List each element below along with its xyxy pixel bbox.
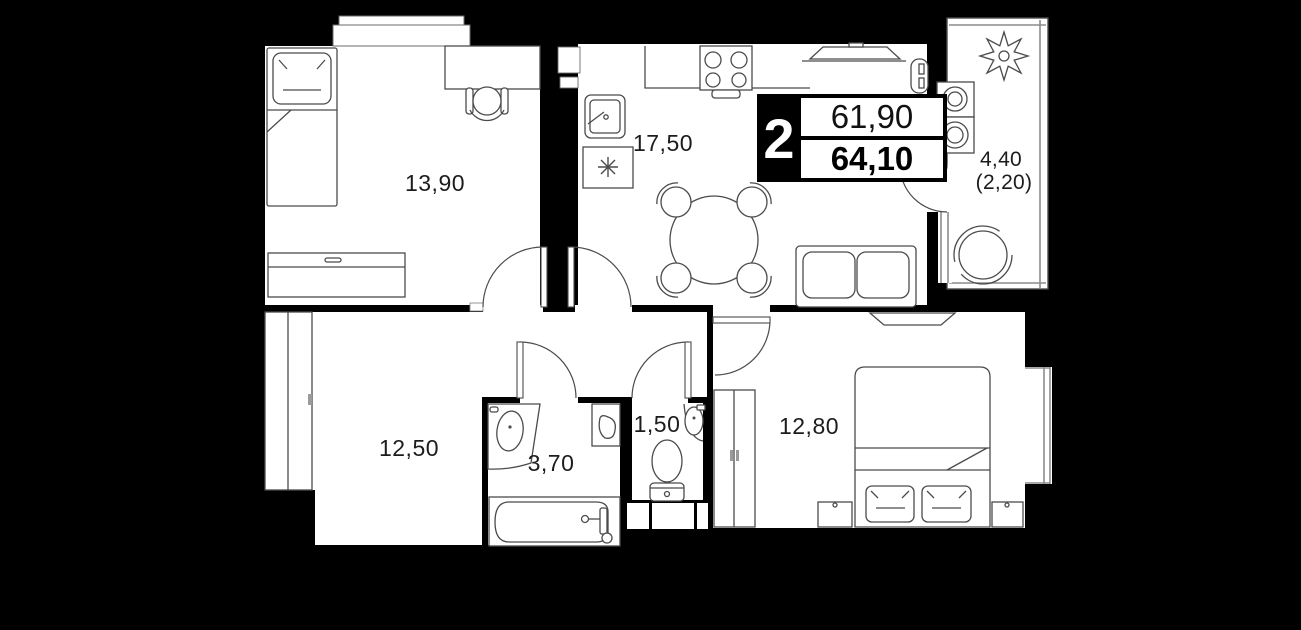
kitchen-living-area-label: 17,50 <box>633 130 693 156</box>
badge-total-area: 64,10 <box>831 140 914 177</box>
hall-area-label: 12,50 <box>379 435 439 461</box>
single-bed <box>267 48 337 206</box>
wall-endcap <box>470 303 483 311</box>
corridor-floor <box>460 312 707 397</box>
stove <box>700 46 752 98</box>
double-bed <box>855 367 990 527</box>
balcony-coefficient-label: (2,20) <box>976 171 1033 194</box>
hall-wall-step <box>248 490 315 560</box>
tv-console-bedroom2 <box>870 313 955 325</box>
plant <box>980 32 1028 80</box>
washing-machine <box>592 404 620 446</box>
duct-box-wc-1 <box>627 503 649 529</box>
pillow <box>866 486 914 522</box>
balcony-area-label: 4,40 <box>980 148 1022 171</box>
kitchen-sink <box>585 95 625 138</box>
unit-info-badge: 2 61,90 64,10 <box>757 94 947 182</box>
dresser <box>268 253 405 297</box>
bedroom1-window <box>333 16 470 46</box>
wardrobe-hall <box>265 312 312 490</box>
nightstand-right <box>992 502 1023 527</box>
duct-box-small <box>560 77 578 88</box>
duct-box-wc-3 <box>697 503 708 529</box>
pillow <box>922 486 971 522</box>
snowflake-icon <box>598 157 618 177</box>
bedroom1-doorway <box>483 305 543 314</box>
bedroom2-bay-window <box>1025 367 1052 484</box>
nightstand-left <box>818 502 852 527</box>
bedroom1-area-label: 13,90 <box>405 170 465 196</box>
toilet <box>650 440 684 501</box>
sofa <box>796 246 916 307</box>
bathtub <box>489 497 620 546</box>
duct-box-top <box>558 47 580 73</box>
floor-plan-drawing: 2 61,90 64,10 13,90 17,50 12,50 3,70 1,5… <box>0 0 1301 630</box>
hall-furniture <box>265 312 312 490</box>
wc-area-label: 1,50 <box>634 411 681 437</box>
floor-plan-canvas: 2 61,90 64,10 13,90 17,50 12,50 3,70 1,5… <box>0 0 1301 630</box>
living-balcony-window <box>938 212 952 283</box>
wc-doorway <box>632 397 688 405</box>
bedroom2-area-label: 12,80 <box>779 413 839 439</box>
bathroom-area-label: 3,70 <box>528 450 575 476</box>
wardrobe-handle <box>308 394 312 405</box>
badge-rooms-count: 2 <box>763 107 794 170</box>
wardrobe-bedroom2 <box>714 390 755 527</box>
kitchen-doorway <box>575 305 632 314</box>
desk <box>445 46 540 89</box>
bedroom2-doorway <box>713 305 770 314</box>
water-heater <box>911 59 928 93</box>
refrigerator <box>583 147 633 188</box>
duct-box-wc-2 <box>652 503 694 529</box>
badge-living-area: 61,90 <box>831 98 914 135</box>
